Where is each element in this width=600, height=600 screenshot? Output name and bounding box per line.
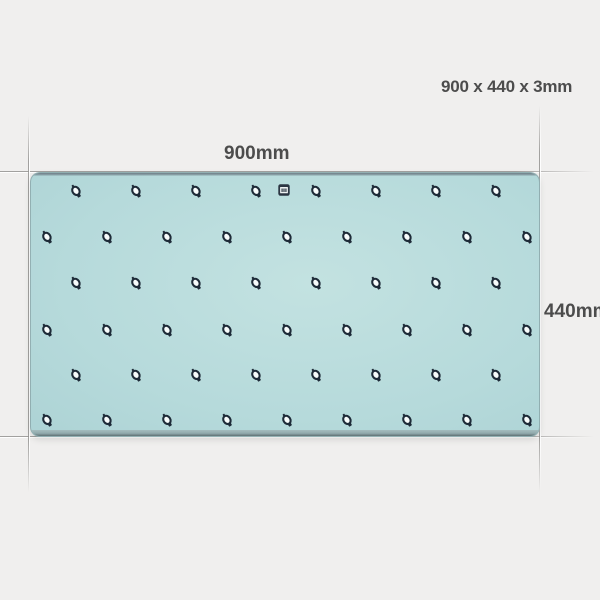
watch-icon (339, 322, 355, 343)
watch-icon (368, 275, 384, 296)
mat-thickness-edge (31, 430, 539, 436)
watch-icon (248, 275, 264, 296)
spec-dimensions-label: 900 x 440 x 3mm (441, 77, 572, 97)
watch-icon (428, 183, 444, 204)
watch-icon (519, 322, 535, 343)
watch-icon (279, 322, 295, 343)
watch-icon (68, 367, 84, 388)
desk-mat (30, 172, 540, 437)
watch-icon (488, 183, 504, 204)
watch-icon (308, 367, 324, 388)
watch-icon (128, 183, 144, 204)
watch-icon (68, 183, 84, 204)
watch-icon (248, 183, 264, 204)
watch-icon (339, 229, 355, 250)
watch-icon (219, 322, 235, 343)
watch-icon (459, 322, 475, 343)
height-dimension-label: 440mm (544, 301, 600, 323)
watch-icon (279, 229, 295, 250)
width-dimension-label: 900mm (224, 143, 290, 165)
watch-icon (39, 322, 55, 343)
watch-icon (459, 229, 475, 250)
watch-icon (488, 367, 504, 388)
watch-icon (188, 367, 204, 388)
watch-icon (159, 322, 175, 343)
watch-icon (219, 229, 235, 250)
watch-icon (368, 183, 384, 204)
watch-icon (128, 275, 144, 296)
watch-icon (308, 183, 324, 204)
watch-icon (428, 275, 444, 296)
watch-icon (488, 275, 504, 296)
watch-icon (519, 229, 535, 250)
mat-top-edge (31, 173, 539, 176)
watch-icon (128, 367, 144, 388)
watch-icon (399, 229, 415, 250)
watch-icon (188, 275, 204, 296)
watch-icon (39, 229, 55, 250)
brand-logo-icon (278, 183, 290, 201)
watch-icon (308, 275, 324, 296)
watch-icon (188, 183, 204, 204)
watch-icon (399, 322, 415, 343)
watch-icon (159, 229, 175, 250)
watch-icon (428, 367, 444, 388)
watch-icon (368, 367, 384, 388)
watch-icon (68, 275, 84, 296)
watch-icon (248, 367, 264, 388)
product-dimension-diagram: 900 x 440 x 3mm 900mm 440mm (0, 0, 600, 600)
watch-pattern (31, 173, 539, 436)
watch-icon (99, 322, 115, 343)
watch-icon (99, 229, 115, 250)
